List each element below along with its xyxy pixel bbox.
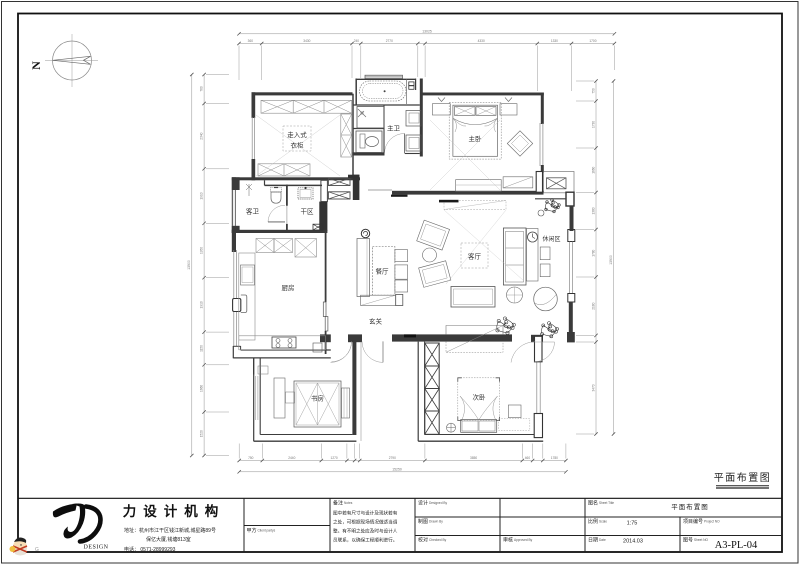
svg-text:3470: 3470 [592,384,596,391]
svg-text:2440: 2440 [288,456,295,460]
svg-text:2340: 2340 [200,132,204,139]
svg-text:750: 750 [248,456,254,460]
svg-text:Checked By: Checked By [429,538,447,542]
svg-text:电话： 0571-28999293: 电话： 0571-28999293 [124,546,176,553]
svg-text:1780: 1780 [592,249,596,256]
svg-text:甲方: 甲方 [247,527,257,534]
svg-text:走入式: 走入式 [287,130,307,139]
svg-text:1730: 1730 [592,121,596,128]
svg-text:13025: 13025 [422,29,432,33]
svg-text:760: 760 [200,86,204,92]
svg-text:平面布置图: 平面布置图 [714,472,772,484]
svg-text:比例: 比例 [588,518,598,525]
svg-text:2790: 2790 [389,456,396,460]
svg-text:主卧: 主卧 [469,134,483,143]
svg-text:N: N [29,61,43,70]
svg-text:平面布置图: 平面布置图 [671,502,709,511]
svg-text:休闲区: 休闲区 [542,235,560,243]
svg-text:主卫: 主卫 [387,124,401,133]
svg-text:客卫: 客卫 [246,207,260,216]
svg-text:Project NO: Project NO [704,520,720,524]
svg-text:1910: 1910 [200,192,204,199]
svg-text:Sheet NO: Sheet NO [694,538,709,542]
svg-text:1950: 1950 [200,247,204,254]
svg-text:Drawn By: Drawn By [429,520,443,524]
svg-text:次卧: 次卧 [473,393,487,402]
svg-text:图号: 图号 [683,538,693,544]
svg-text:2014.03: 2014.03 [623,539,643,545]
svg-text:厨房: 厨房 [282,283,295,292]
svg-text:1660: 1660 [200,385,204,392]
svg-text:之处，可根据现场情况做适当调: 之处，可根据现场情况做适当调 [333,519,398,526]
svg-text:460: 460 [525,456,531,460]
svg-text:4330: 4330 [478,39,485,43]
svg-text:员联系，以确保工程顺利进行。: 员联系，以确保工程顺利进行。 [333,537,397,544]
svg-text:制图: 制图 [418,518,428,525]
svg-text:1520: 1520 [200,430,204,437]
svg-text:1660: 1660 [592,166,596,173]
svg-text:DESIGN: DESIGN [84,545,109,551]
svg-text:1910: 1910 [200,301,204,308]
svg-text:地址：杭州市江干区钱江新城,城星路89号: 地址：杭州市江干区钱江新城,城星路89号 [124,527,216,534]
svg-text:3850: 3850 [470,456,477,460]
svg-text:1270: 1270 [331,456,338,460]
svg-text:1380: 1380 [592,207,596,214]
svg-text:保亿大厦,钱塘813室: 保亿大厦,钱塘813室 [146,536,191,543]
svg-text:校对: 校对 [418,537,428,544]
svg-text:1:75: 1:75 [627,521,638,527]
svg-text:图名: 图名 [588,500,598,507]
svg-text:1780: 1780 [551,456,558,460]
svg-text:2770: 2770 [386,39,393,43]
svg-text:力设计机构: 力设计机构 [123,503,226,519]
svg-text:设计: 设计 [418,500,428,507]
svg-text:750: 750 [592,88,596,94]
svg-text:1150: 1150 [200,345,204,352]
svg-text:360: 360 [248,39,254,43]
svg-text:Scale: Scale [599,520,607,524]
svg-text:项目编号: 项目编号 [683,518,703,525]
svg-text:2180: 2180 [592,302,596,309]
svg-text:13900: 13900 [187,260,191,270]
svg-text:Client partys: Client partys [258,529,276,533]
svg-text:玄关: 玄关 [369,317,383,326]
svg-text:干区: 干区 [301,208,315,216]
svg-text:审核: 审核 [503,537,513,544]
svg-text:240: 240 [354,39,360,43]
svg-text:餐厅: 餐厅 [376,267,390,276]
svg-text:整。有不明之处应及时与设计人: 整。有不明之处应及时与设计人 [333,528,398,535]
svg-text:13900: 13900 [609,255,613,265]
svg-text:G: G [35,547,39,553]
svg-text:客厅: 客厅 [468,252,482,261]
svg-text:A3-PL-04: A3-PL-04 [715,540,758,551]
svg-text:日期: 日期 [588,538,598,544]
svg-text:15250: 15250 [392,467,402,471]
svg-text:Approved By: Approved By [514,538,533,542]
svg-text:Date: Date [599,538,606,542]
svg-text:备注: 备注 [333,500,343,507]
svg-text:图中若有尺寸与设计及现状若有: 图中若有尺寸与设计及现状若有 [333,510,398,517]
svg-text:Sheet Title: Sheet Title [599,501,614,505]
svg-text:1700: 1700 [589,39,596,43]
svg-text:Notes: Notes [344,501,353,505]
svg-text:Designed By: Designed By [429,501,447,505]
svg-text:3430: 3430 [303,39,310,43]
svg-text:1330: 1330 [551,39,558,43]
